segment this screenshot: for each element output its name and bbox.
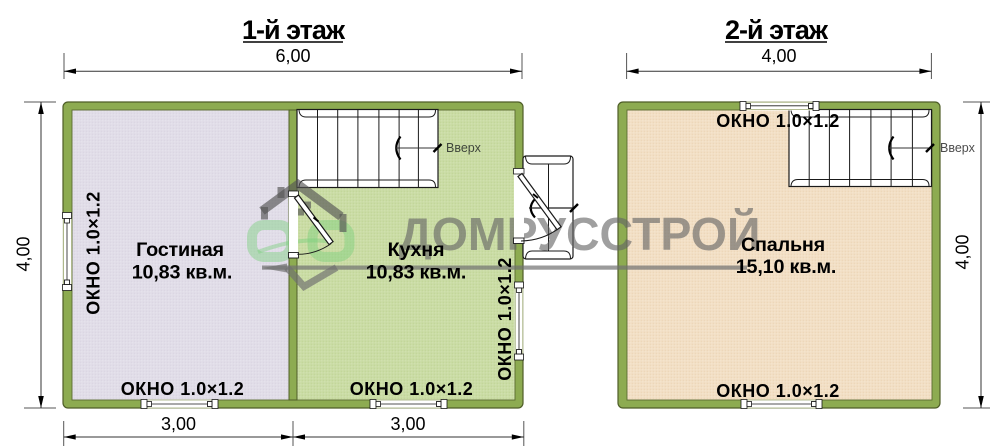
svg-text:4,00: 4,00 bbox=[14, 236, 34, 271]
svg-text:15,10 кв.м.: 15,10 кв.м. bbox=[736, 256, 836, 278]
svg-text:Вверх: Вверх bbox=[940, 141, 976, 155]
svg-text:2-й этаж: 2-й этаж bbox=[725, 15, 829, 45]
svg-text:4,00: 4,00 bbox=[761, 46, 796, 66]
svg-text:ОКНО 1.0×1.2: ОКНО 1.0×1.2 bbox=[495, 257, 515, 381]
svg-text:Вверх: Вверх bbox=[446, 141, 482, 155]
svg-text:6,00: 6,00 bbox=[275, 46, 310, 66]
svg-text:Кухня: Кухня bbox=[388, 239, 445, 261]
svg-text:1-й этаж: 1-й этаж bbox=[242, 15, 346, 45]
svg-text:4,00: 4,00 bbox=[953, 234, 973, 269]
svg-text:ОКНО 1.0×1.2: ОКНО 1.0×1.2 bbox=[121, 379, 245, 399]
svg-text:ОКНО 1.0×1.2: ОКНО 1.0×1.2 bbox=[350, 379, 474, 399]
svg-text:ОКНО 1.0×1.2: ОКНО 1.0×1.2 bbox=[716, 381, 840, 401]
svg-text:10,83 кв.м.: 10,83 кв.м. bbox=[366, 262, 466, 284]
svg-text:ОКНО 1.0×1.2: ОКНО 1.0×1.2 bbox=[716, 111, 840, 131]
svg-text:10,83 кв.м.: 10,83 кв.м. bbox=[132, 262, 232, 284]
svg-text:ОКНО 1.0×1.2: ОКНО 1.0×1.2 bbox=[84, 191, 104, 315]
svg-text:3,00: 3,00 bbox=[161, 414, 196, 434]
svg-text:Спальня: Спальня bbox=[741, 234, 825, 256]
svg-text:3,00: 3,00 bbox=[390, 414, 425, 434]
svg-text:Гостиная: Гостиная bbox=[136, 239, 224, 261]
svg-text:ДОМРУССТРОЙ: ДОМРУССТРОЙ bbox=[399, 208, 761, 260]
